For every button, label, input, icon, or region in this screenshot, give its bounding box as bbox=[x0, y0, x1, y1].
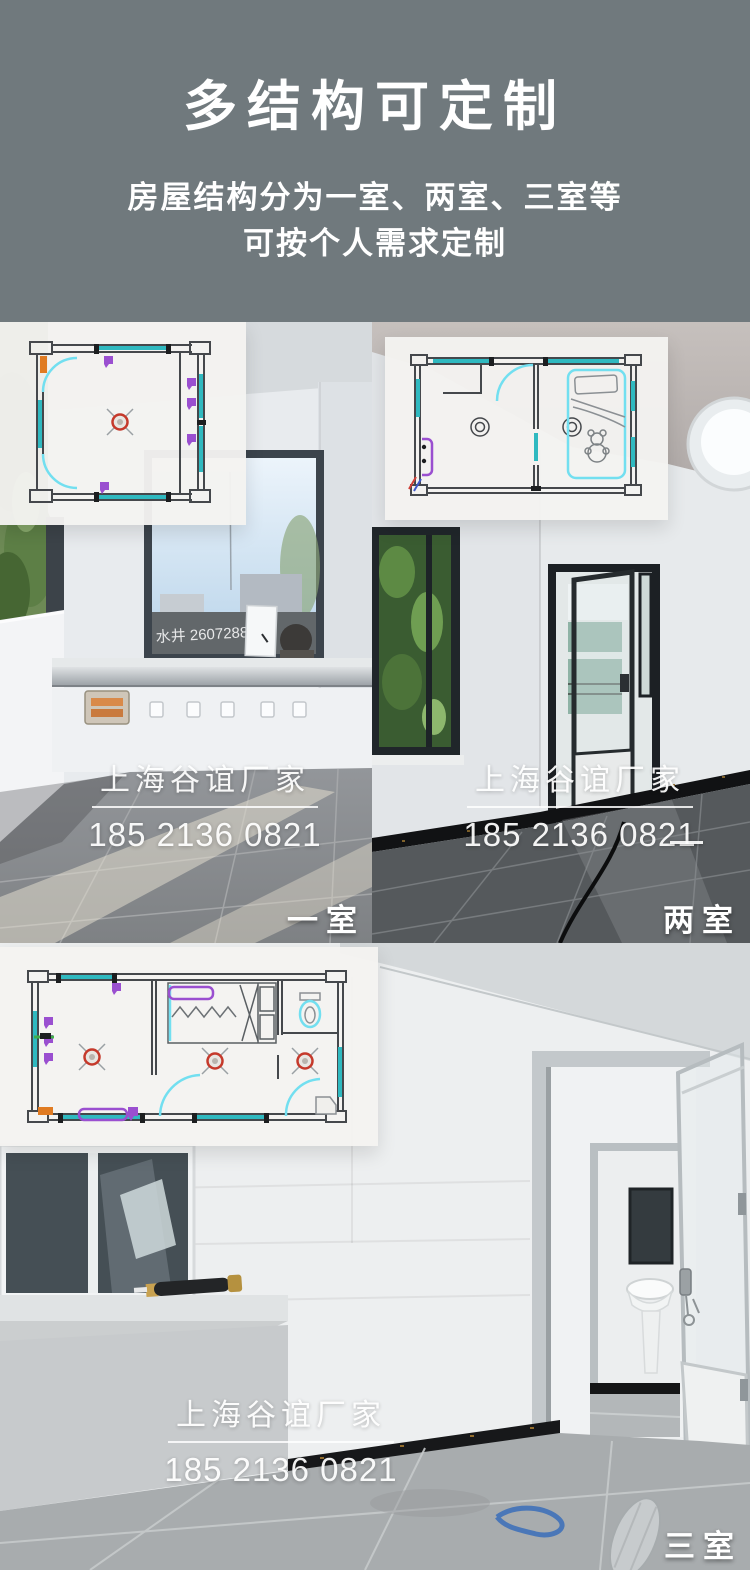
promo-page: 多结构可定制 房屋结构分为一室、两室、三室等 可按个人需求定制 bbox=[0, 0, 750, 1570]
one-room-floor-plan-icon bbox=[0, 322, 246, 525]
header-banner: 多结构可定制 房屋结构分为一室、两室、三室等 可按个人需求定制 bbox=[0, 0, 750, 322]
plan-wall-ticks bbox=[94, 344, 206, 502]
plan-door-arcs bbox=[43, 358, 77, 488]
watermark-phone: 185 2136 0821 bbox=[151, 1451, 411, 1489]
three-room-floor-plan-card bbox=[0, 947, 378, 1146]
open-door-leaf bbox=[678, 1045, 750, 1488]
photo-three-room: 上海谷谊厂家 185 2136 0821 三室 bbox=[0, 943, 750, 1570]
subtitle-line-1: 房屋结构分为一室、两室、三室等 bbox=[0, 175, 750, 221]
three-room-floor-plan-icon bbox=[0, 947, 378, 1146]
page-title: 多结构可定制 bbox=[0, 62, 750, 141]
bathroom-doorway bbox=[532, 1045, 750, 1488]
plan-walls bbox=[28, 971, 346, 1122]
watermark-dash bbox=[670, 841, 703, 844]
two-room-floor-plan-icon bbox=[385, 337, 668, 520]
watermark: 上海谷谊厂家 185 2136 0821 bbox=[151, 1390, 411, 1489]
room-label-one: 一室 bbox=[287, 895, 365, 940]
steel-counter bbox=[52, 658, 372, 686]
plan-bed-with-teddy bbox=[568, 370, 625, 478]
photo-two-room: 上海谷谊厂家 185 2136 0821 两室 bbox=[372, 322, 750, 943]
two-room-floor-plan-card bbox=[385, 337, 668, 520]
bathroom-skirting bbox=[590, 1383, 680, 1394]
breaker-panel bbox=[85, 691, 129, 724]
left-window bbox=[0, 1145, 194, 1301]
door-transom-slot bbox=[640, 574, 651, 696]
door-handle bbox=[620, 674, 629, 692]
page-subtitle: 房屋结构分为一室、两室、三室等 可按个人需求定制 bbox=[0, 175, 750, 267]
plan-misc-fixtures bbox=[34, 1033, 336, 1120]
watermark: 上海谷谊厂家 185 2136 0821 bbox=[75, 755, 335, 854]
photo-one-room: 水井 2607288 bbox=[0, 322, 372, 943]
plan-orange-fixture bbox=[40, 356, 47, 373]
plan-ceiling-lights bbox=[471, 418, 581, 436]
plan-bed bbox=[168, 983, 276, 1043]
photo-row-top: 水井 2607288 bbox=[0, 322, 750, 943]
bathroom-interior bbox=[590, 1143, 680, 1437]
watermark-name: 上海谷谊厂家 bbox=[92, 755, 318, 808]
watermark-name: 上海谷谊厂家 bbox=[168, 1390, 394, 1443]
plan-toilet bbox=[300, 993, 320, 1027]
plan-ceiling-light-symbols bbox=[79, 1044, 318, 1074]
plan-ceiling-light-symbol bbox=[107, 409, 133, 435]
plan-corner-shower bbox=[316, 1097, 336, 1114]
bathroom-mirror bbox=[630, 1189, 672, 1263]
subtitle-line-2: 可按个人需求定制 bbox=[0, 221, 750, 267]
plan-windows bbox=[418, 361, 633, 467]
room-label-two: 两室 bbox=[663, 895, 741, 940]
watermark-phone: 185 2136 0821 bbox=[450, 816, 710, 854]
room-label-three: 三室 bbox=[664, 1521, 742, 1566]
plan-door-arcs bbox=[160, 1075, 320, 1116]
tablet-on-counter bbox=[245, 605, 277, 656]
plan-wall-ticks bbox=[489, 357, 548, 491]
plan-door-arc bbox=[497, 365, 533, 401]
watermark-phone: 185 2136 0821 bbox=[75, 816, 335, 854]
one-room-floor-plan-card bbox=[0, 322, 246, 525]
watermark: 上海谷谊厂家 185 2136 0821 bbox=[450, 755, 710, 854]
plan-purple-pillow bbox=[169, 987, 213, 999]
watermark-name: 上海谷谊厂家 bbox=[467, 755, 693, 808]
left-window-with-foliage bbox=[372, 527, 464, 765]
